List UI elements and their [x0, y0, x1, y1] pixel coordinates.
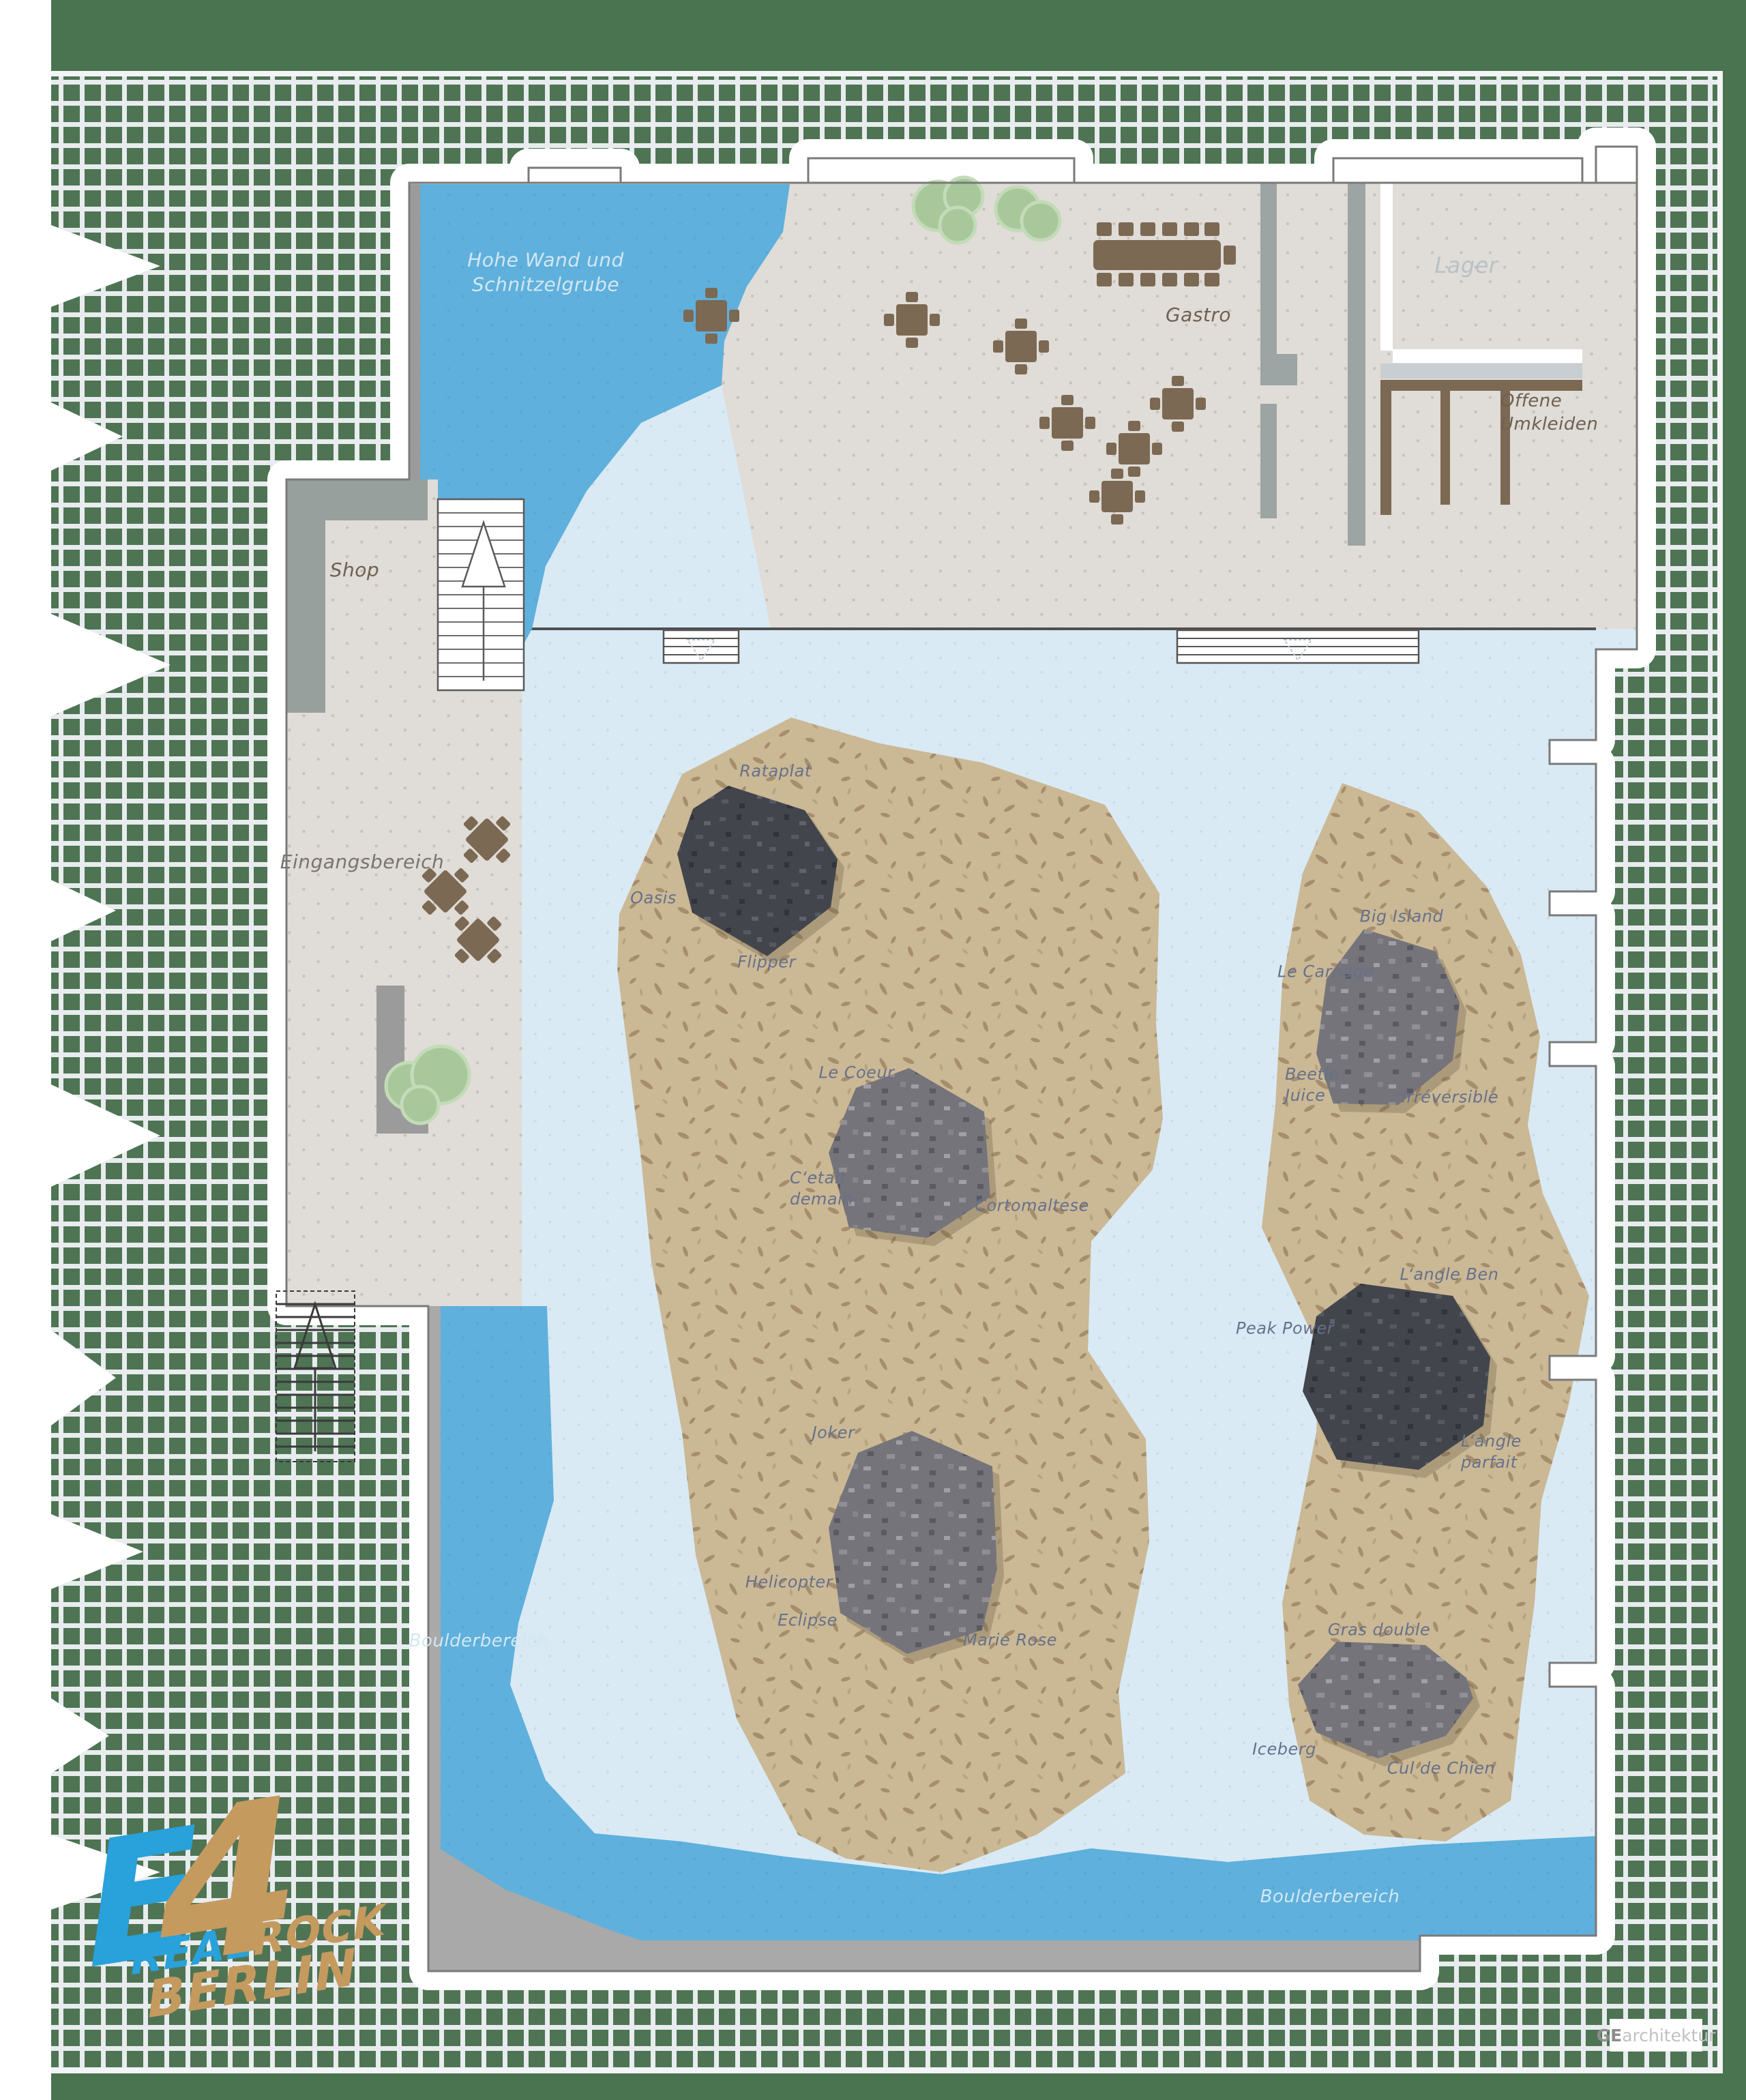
rock-joker — [829, 1431, 997, 1654]
wall-strip-left — [409, 184, 420, 479]
logo-number-4: 4 — [154, 1790, 304, 1977]
lager-wall-gap-horizontal — [1393, 349, 1582, 363]
staircase-hall-wide-icon — [1177, 630, 1419, 663]
floorplan-scene: Hohe Wand und Schnitzelgrube Gastro Lage… — [0, 0, 1746, 2100]
wall-strip-bottom — [428, 1940, 1420, 1971]
staircase-hall-small-icon — [664, 630, 739, 663]
lager-wall-gap-vertical — [1380, 183, 1393, 351]
credit-architektur: architektur — [1622, 2026, 1715, 2045]
credit-ge: GE — [1597, 2026, 1623, 2045]
logo-e4-real-rock-berlin: E4 REALROCK BERLIN — [80, 1767, 389, 2035]
staircase-shop-icon — [438, 499, 524, 690]
architect-credit-badge: GEarchitektur — [1610, 2019, 1702, 2052]
building-interior — [286, 177, 1637, 1971]
